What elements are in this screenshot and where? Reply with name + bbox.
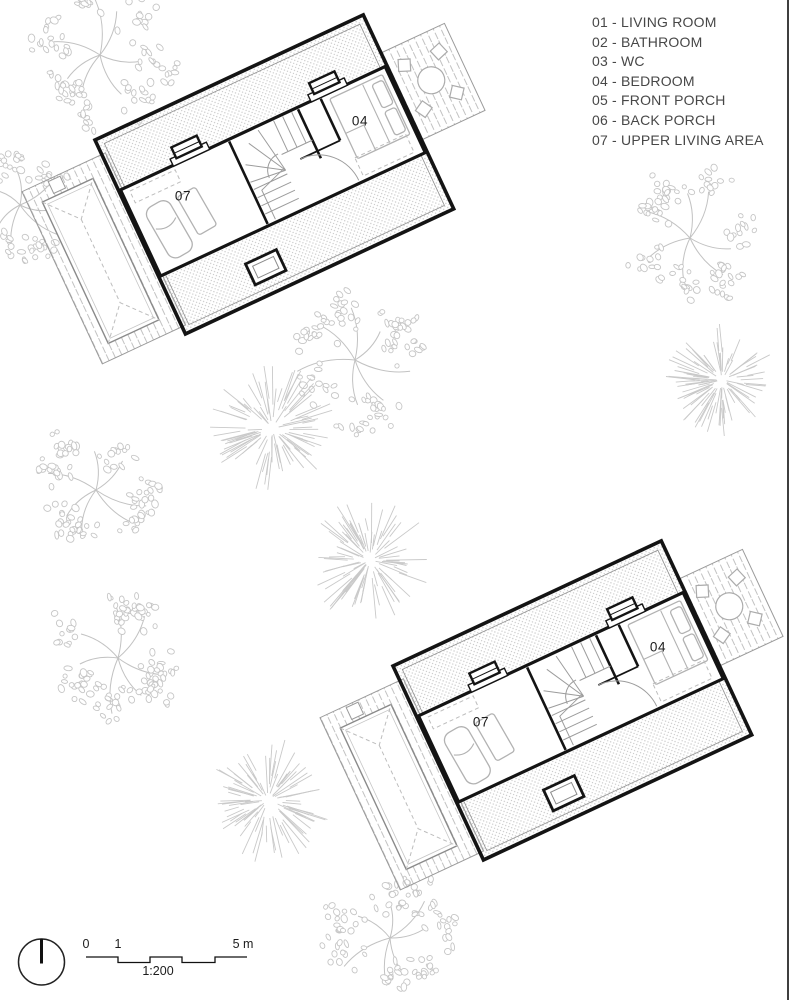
scale-tick-0: 0 — [83, 937, 90, 951]
tree-leafy — [50, 592, 179, 725]
tree-spiky — [216, 740, 327, 862]
legend-item: 07 - UPPER LIVING AREA — [592, 131, 782, 151]
scale-tick-5m: 5 m — [233, 937, 254, 951]
scale-tick-1: 1 — [115, 937, 122, 951]
tree-leafy — [293, 286, 428, 437]
room-legend: 01 - LIVING ROOM 02 - BATHROOM 03 - WC 0… — [592, 13, 782, 150]
tree-spiky — [318, 503, 427, 619]
legend-item: 06 - BACK PORCH — [592, 111, 782, 131]
legend-item: 04 - BEDROOM — [592, 72, 782, 92]
legend-item: 03 - WC — [592, 52, 782, 72]
room-label-bedroom: 04 — [352, 114, 368, 129]
legend-item: 05 - FRONT PORCH — [592, 91, 782, 111]
upper-floor-plan-bottom — [313, 511, 789, 897]
tree-leafy — [626, 163, 758, 304]
tree-spiky — [210, 366, 332, 490]
tree-leafy — [319, 876, 460, 993]
tree-leafy — [35, 429, 163, 543]
upper-floor-plan-top — [15, 0, 517, 371]
room-label-upper-living: 07 — [175, 189, 191, 204]
room-label-bedroom: 04 — [650, 640, 666, 655]
room-label-upper-living: 07 — [473, 715, 489, 730]
scale-ratio-label: 1:200 — [142, 964, 173, 978]
legend-item: 01 - LIVING ROOM — [592, 13, 782, 33]
legend-item: 02 - BATHROOM — [592, 33, 782, 53]
tree-spiky — [666, 324, 770, 436]
north-arrow-circle-icon — [19, 939, 65, 986]
site-plan-page: 01 - LIVING ROOM 02 - BATHROOM 03 - WC 0… — [0, 0, 789, 1000]
scale-bar — [86, 957, 247, 963]
